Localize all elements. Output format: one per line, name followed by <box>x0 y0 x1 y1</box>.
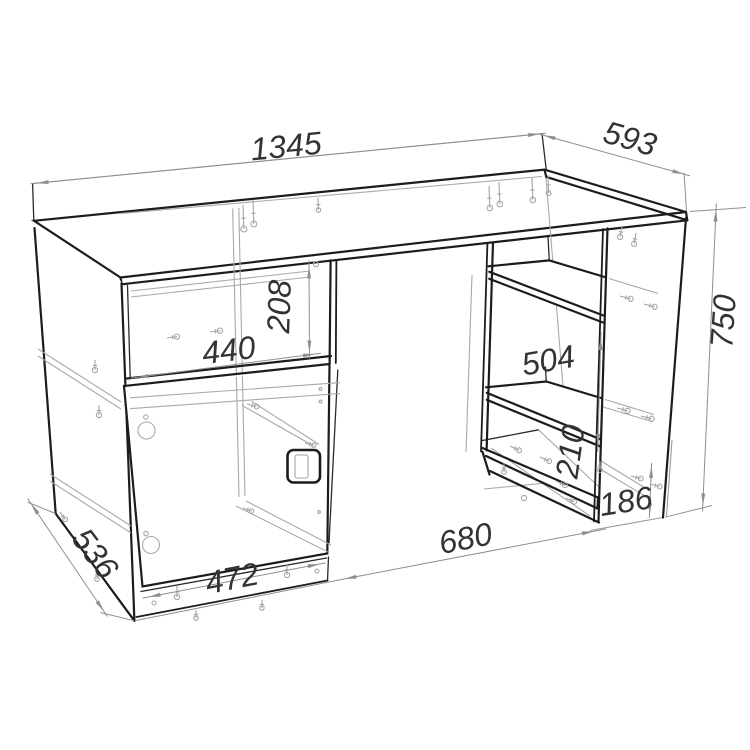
svg-text:1345: 1345 <box>249 125 324 168</box>
svg-text:750: 750 <box>703 293 743 349</box>
svg-text:208: 208 <box>260 279 298 335</box>
svg-text:210: 210 <box>548 422 591 481</box>
svg-text:440: 440 <box>200 329 258 371</box>
